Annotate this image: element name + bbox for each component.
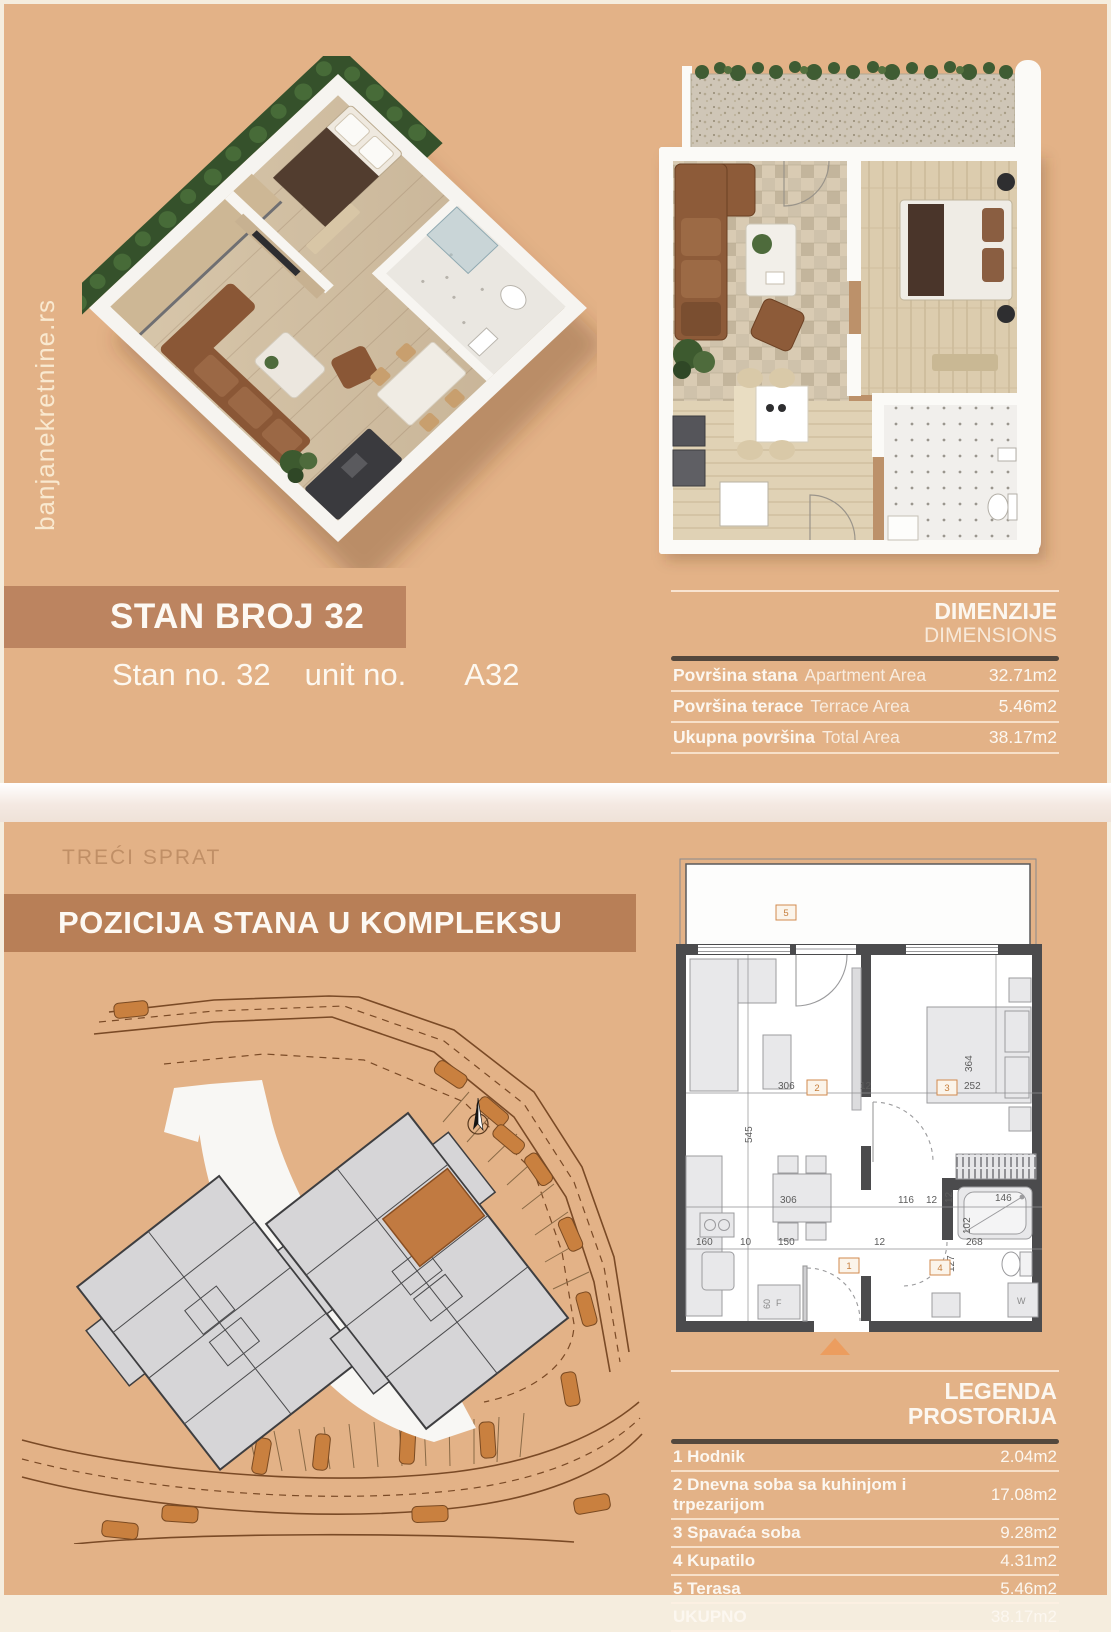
watermark-text: banjanekretnine.rs	[30, 299, 61, 531]
svg-text:268: 268	[966, 1237, 983, 1248]
technical-floor-plan: 306 12 252 364 545 306 116 12 146 102 12…	[660, 856, 1064, 1360]
position-title: POZICIJA STANA U KOMPLEKSU	[58, 905, 562, 941]
row-value: 4.31m2	[1000, 1551, 1057, 1571]
table-row: Ukupna površina Total Area 38.17m2	[671, 723, 1059, 754]
svg-text:116: 116	[898, 1195, 914, 1206]
bottom-section: TREĆI SPRAT POZICIJA STANA U KOMPLEKSU	[4, 822, 1107, 1595]
dimensions-heading: DIMENZIJE DIMENSIONS	[671, 592, 1059, 656]
terrace-outline	[686, 864, 1030, 946]
row-value: 9.28m2	[1000, 1523, 1057, 1543]
subtitle-unit: unit no.	[305, 657, 407, 693]
svg-text:364: 364	[964, 1055, 975, 1072]
windows	[698, 945, 998, 954]
legend-heading: LEGENDA PROSTORIJA	[671, 1372, 1059, 1439]
row-value: 17.08m2	[991, 1485, 1057, 1505]
dimensions-table: DIMENZIJE DIMENSIONS Površina stana Apar…	[671, 590, 1059, 754]
row-label: 4 Kupatilo	[673, 1551, 755, 1571]
table-plant	[752, 234, 772, 254]
heading-primary: DIMENZIJE	[673, 599, 1057, 624]
position-title-bar: POZICIJA STANA U KOMPLEKSU	[4, 894, 636, 952]
svg-text:4: 4	[937, 1263, 942, 1274]
row-label: Ukupna površina	[673, 727, 815, 748]
floor-plan-3d	[82, 56, 597, 568]
brochure-page: banjanekretnine.rs	[0, 0, 1111, 1601]
svg-text:160: 160	[696, 1237, 713, 1248]
table-row: Površina terace Terrace Area 5.46m2	[671, 692, 1059, 723]
svg-text:150: 150	[778, 1237, 795, 1248]
svg-text:12: 12	[874, 1237, 886, 1248]
heading-primary: LEGENDA	[673, 1379, 1057, 1404]
row-label: UKUPNO	[673, 1607, 747, 1627]
subtitle: Stan no. 32 unit no. A32	[112, 657, 519, 693]
row-value: 32.71m2	[989, 665, 1057, 686]
site-plan	[14, 972, 644, 1544]
wardrobe	[956, 1154, 1036, 1179]
row-value: 5.46m2	[999, 696, 1057, 717]
legend-row-total: UKUPNO 38.17m2	[671, 1604, 1059, 1632]
magazine	[766, 272, 784, 284]
legend-row: 5 Terasa 5.46m2	[671, 1576, 1059, 1604]
svg-text:545: 545	[744, 1126, 755, 1143]
row-label: 2 Dnevna soba sa kuhinjom i trpezarijom	[673, 1475, 991, 1515]
legend-table: LEGENDA PROSTORIJA 1 Hodnik 2.04m2 2 Dne…	[671, 1370, 1059, 1632]
kitchen-sink	[702, 1252, 734, 1290]
subtitle-code: A32	[464, 657, 519, 693]
svg-text:60: 60	[762, 1299, 772, 1309]
svg-text:12: 12	[860, 1081, 872, 1092]
svg-text:2: 2	[814, 1083, 819, 1094]
svg-text:12: 12	[944, 1191, 955, 1203]
svg-text:306: 306	[778, 1081, 795, 1092]
heading-secondary: PROSTORIJA	[673, 1404, 1057, 1429]
terrace	[682, 61, 1015, 148]
entry-opening	[814, 1321, 869, 1332]
title-bar: STAN BROJ 32	[4, 586, 406, 648]
legend-row: 3 Spavaća soba 9.28m2	[671, 1520, 1059, 1548]
floor-plan-2d	[632, 48, 1062, 576]
stove	[700, 1213, 734, 1237]
svg-text:10: 10	[740, 1237, 752, 1248]
nightstand-2	[1009, 1107, 1031, 1131]
row-label: 1 Hodnik	[673, 1447, 745, 1467]
top-section: banjanekretnine.rs	[4, 4, 1107, 783]
svg-text:146: 146	[995, 1193, 1012, 1204]
floor-label: TREĆI SPRAT	[62, 846, 221, 870]
legend-row: 4 Kupatilo 4.31m2	[671, 1548, 1059, 1576]
table-row: Površina stana Apartment Area 32.71m2	[671, 661, 1059, 692]
terrace-plants	[695, 61, 1013, 81]
svg-text:F: F	[776, 1298, 782, 1308]
svg-text:102: 102	[962, 1217, 973, 1234]
shower-tray	[888, 516, 918, 540]
row-value: 38.17m2	[989, 727, 1057, 748]
svg-text:3: 3	[944, 1083, 949, 1094]
fridge	[720, 482, 768, 526]
svg-text:12: 12	[926, 1195, 938, 1206]
row-value: 5.46m2	[1000, 1579, 1057, 1599]
section-divider	[0, 783, 1111, 822]
row-label: 5 Terasa	[673, 1579, 741, 1599]
row-label: Površina stana	[673, 665, 798, 686]
row-value: 38.17m2	[991, 1607, 1057, 1627]
svg-text:252: 252	[964, 1081, 981, 1092]
heading-secondary: DIMENSIONS	[673, 624, 1057, 647]
svg-text:W: W	[1017, 1296, 1026, 1306]
sink	[998, 448, 1016, 461]
subtitle-stan: Stan no. 32	[112, 657, 271, 693]
page-title: STAN BROJ 32	[110, 597, 364, 637]
plan3d-body	[82, 56, 597, 558]
svg-text:306: 306	[780, 1195, 797, 1206]
entry-arrow-icon	[820, 1338, 850, 1355]
sofa-left	[690, 959, 738, 1091]
nightstand-1	[1009, 978, 1031, 1002]
row-label: 3 Spavaća soba	[673, 1523, 801, 1543]
hall-cabinet	[932, 1293, 960, 1317]
row-label-en: Apartment Area	[805, 665, 927, 686]
coffee-table	[746, 224, 796, 296]
legend-row: 1 Hodnik 2.04m2	[671, 1444, 1059, 1472]
toilet	[1002, 1252, 1032, 1276]
row-value: 2.04m2	[1000, 1447, 1057, 1467]
svg-text:5: 5	[783, 908, 788, 919]
svg-text:1: 1	[846, 1261, 851, 1272]
row-label-en: Total Area	[822, 727, 900, 748]
legend-row: 2 Dnevna soba sa kuhinjom i trpezarijom …	[671, 1472, 1059, 1520]
row-label-en: Terrace Area	[810, 696, 909, 717]
toilet	[988, 494, 1008, 520]
row-label: Površina terace	[673, 696, 803, 717]
